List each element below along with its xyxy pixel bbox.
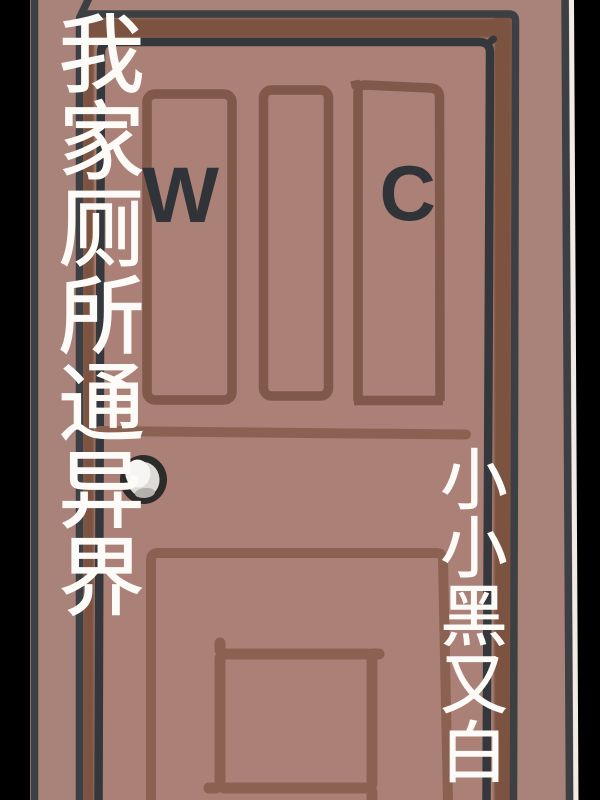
svg-text:C: C	[380, 149, 436, 237]
svg-text:W: W	[142, 150, 219, 239]
